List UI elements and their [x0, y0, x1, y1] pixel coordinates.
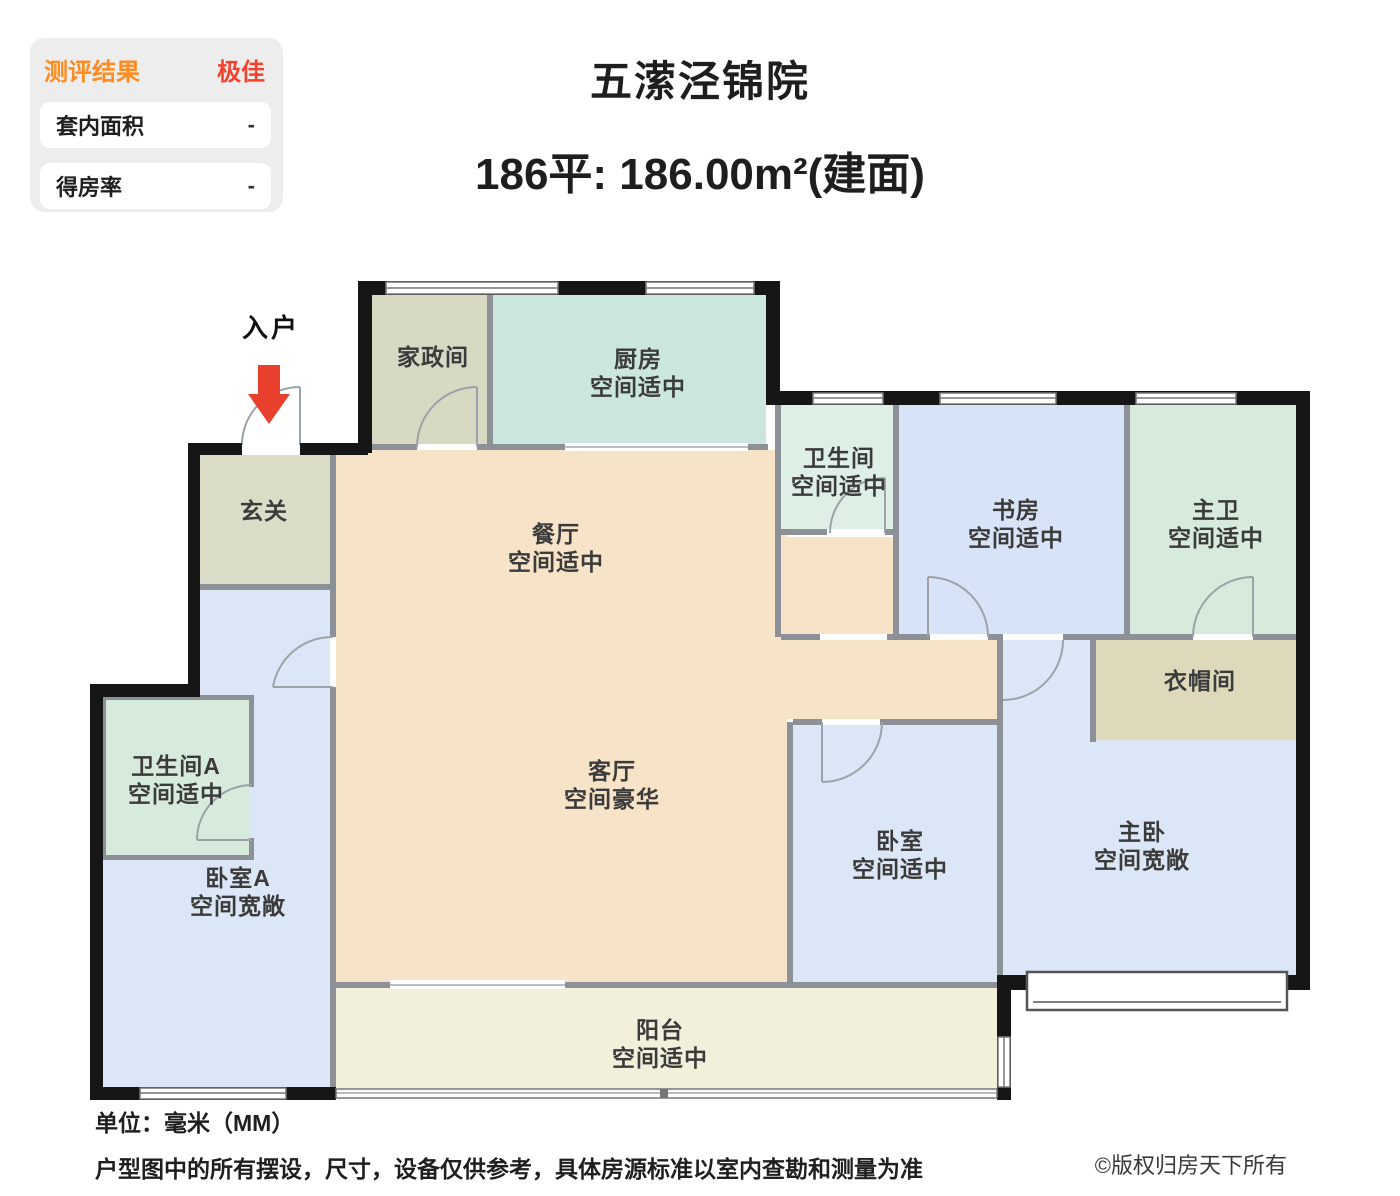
- entrance-label: 入户: [242, 308, 300, 345]
- window-bedroom-a: [140, 1088, 286, 1099]
- room-label-housekeeping: 家政间: [397, 343, 469, 371]
- room-label-living: 客厅空间豪华: [564, 757, 660, 813]
- hallway-area: [781, 640, 997, 719]
- window-mid-2: [940, 393, 1056, 404]
- disclaimer-text: 户型图中的所有摆设，尺寸，设备仅供参考，具体房源标准以室内查勘和测量为准: [95, 1150, 923, 1184]
- bay-window: [1027, 972, 1287, 1010]
- room-label-balcony: 阳台空间适中: [612, 1016, 708, 1072]
- room-label-cloakroom: 衣帽间: [1164, 667, 1236, 695]
- room-label-study: 书房空间适中: [968, 496, 1064, 552]
- copyright-text: ©版权归房天下所有: [1095, 1148, 1287, 1180]
- room-label-bedroom: 卧室空间适中: [852, 827, 948, 883]
- room-label-master-bath: 主卫空间适中: [1168, 496, 1264, 552]
- window-balcony-right: [998, 1037, 1010, 1087]
- window-mid-3: [1136, 393, 1236, 404]
- room-label-bathroom-a: 卫生间A空间适中: [128, 752, 224, 808]
- floorplan-page: 测评结果 极佳 套内面积 - 得房率 - 五潆泾锦院 186平: 186.00m…: [0, 0, 1400, 1196]
- room-label-kitchen: 厨房空间适中: [590, 345, 686, 401]
- unit-note: 单位：毫米（MM）: [95, 1104, 294, 1138]
- room-label-master-bedroom: 主卧空间宽敞: [1094, 818, 1190, 874]
- window-top-1: [386, 282, 558, 294]
- room-fills: [103, 293, 1296, 1089]
- entrance-arrow-icon: [248, 365, 290, 424]
- room-label-bathroom: 卫生间空间适中: [791, 444, 887, 500]
- room-label-foyer: 玄关: [240, 497, 288, 525]
- room-label-bedroom-a: 卧室A空间宽敞: [190, 864, 286, 920]
- room-label-dining: 餐厅空间适中: [508, 520, 604, 576]
- window-top-2: [646, 282, 754, 294]
- balcony-glass-wall: [336, 1089, 997, 1098]
- bath-vestibule-area: [781, 537, 893, 634]
- window-mid-1: [813, 393, 883, 404]
